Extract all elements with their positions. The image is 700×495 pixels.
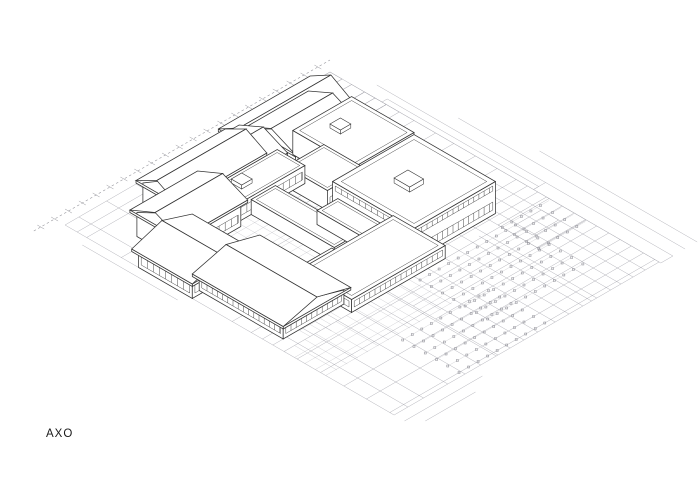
axonometric-view [0,0,700,495]
building [130,75,496,339]
drawing-canvas: AXO [0,0,700,495]
drawing-label: AXO [46,428,73,440]
